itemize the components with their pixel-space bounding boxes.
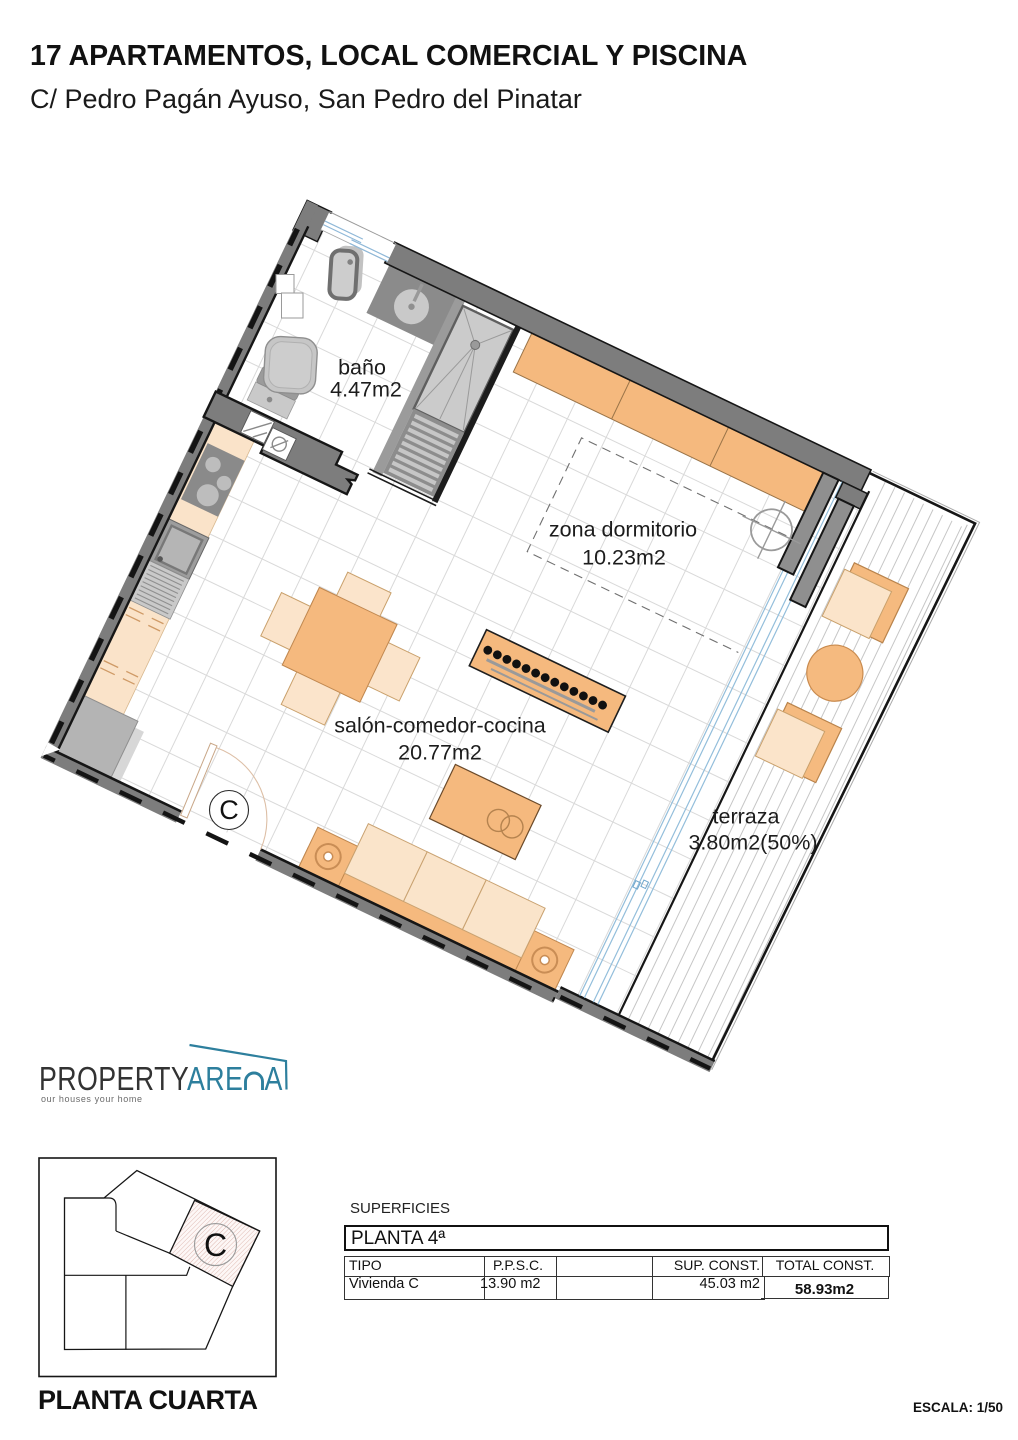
svg-text:C: C (219, 795, 239, 825)
svg-text:PROPERTY: PROPERTY (39, 1061, 189, 1097)
svg-text:A: A (265, 1061, 284, 1097)
svg-text:our houses your home: our houses your home (41, 1094, 143, 1104)
svg-text:C: C (204, 1227, 227, 1263)
svg-text:ARE: ARE (187, 1061, 243, 1097)
